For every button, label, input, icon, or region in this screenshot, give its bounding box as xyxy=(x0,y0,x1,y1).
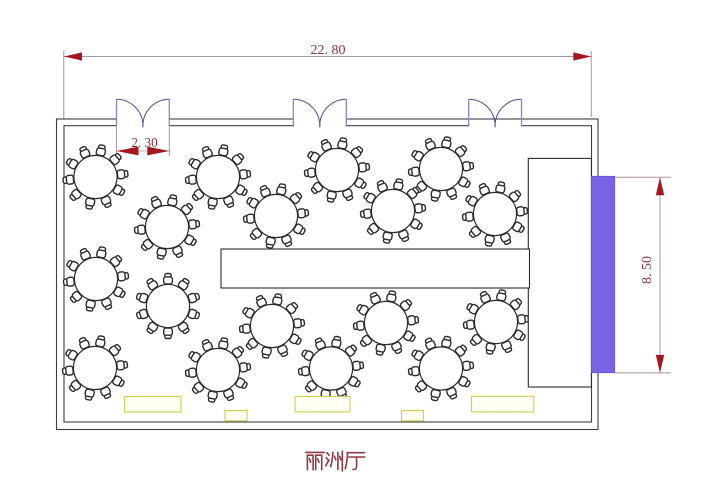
svg-text:2. 30: 2. 30 xyxy=(131,135,158,150)
svg-text:22. 80: 22. 80 xyxy=(311,43,346,58)
svg-text:8. 50: 8. 50 xyxy=(640,256,655,284)
